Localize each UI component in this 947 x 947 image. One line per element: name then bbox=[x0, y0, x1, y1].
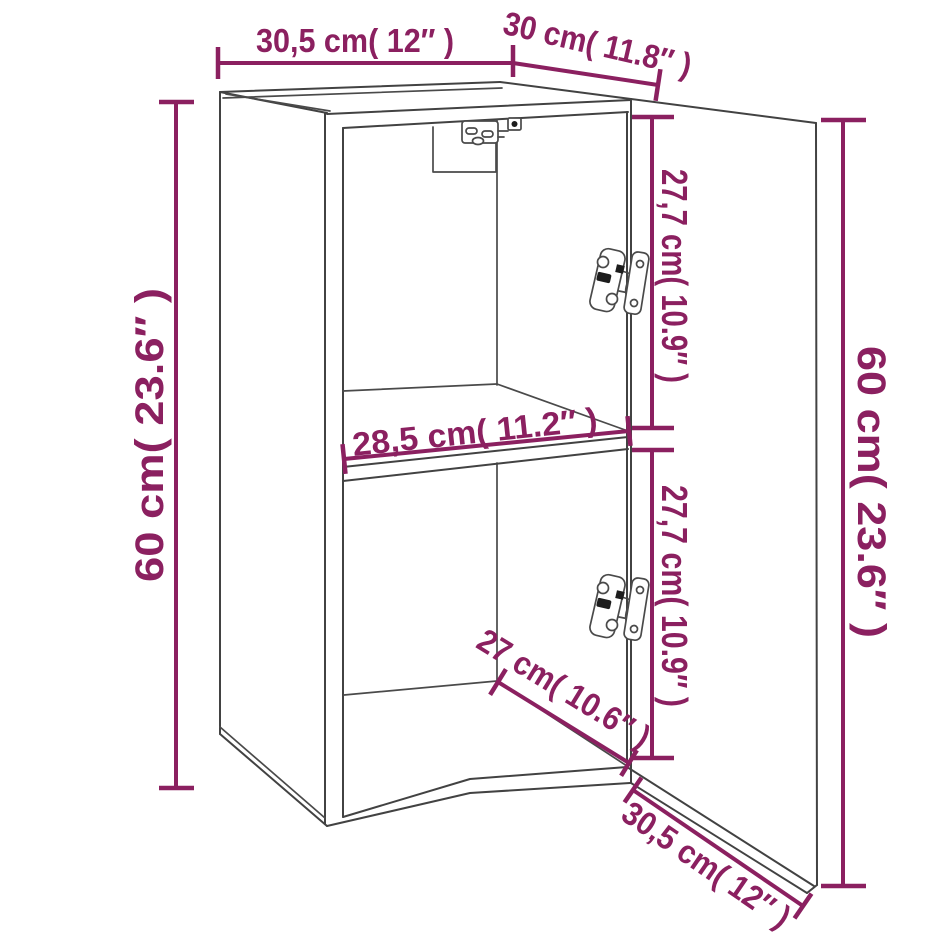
wall-mount-bracket bbox=[433, 118, 521, 172]
hinge-screw-hole bbox=[637, 261, 644, 268]
dimension-interior-depth-label: 27 cm( 10.6″ ) bbox=[471, 621, 657, 755]
dimension-door-width-label: 30,5 cm( 12″ ) bbox=[615, 794, 797, 936]
dimension-left-height-label: 60 cm( 23.6″ ) bbox=[128, 288, 172, 582]
top-back-edge bbox=[220, 82, 500, 92]
bracket-slot-2 bbox=[482, 131, 493, 137]
bottom-left-edge bbox=[220, 734, 327, 826]
door-outer-edge bbox=[816, 123, 817, 885]
floor-back-edge bbox=[344, 681, 497, 695]
dimension-lower-compartment-label: 27,7 cm( 10.9″ ) bbox=[654, 485, 695, 707]
hinge-screw-hole bbox=[598, 257, 609, 268]
dimension-door-height: 60 cm( 23.6″ ) bbox=[821, 120, 893, 886]
hinge-icon bbox=[588, 247, 649, 315]
bracket-screw-dot-icon bbox=[512, 121, 518, 127]
door-top-edge bbox=[631, 99, 816, 123]
dimension-top-width: 30,5 cm( 12″ ) bbox=[218, 22, 513, 79]
hinge-icon-lower bbox=[588, 573, 649, 641]
dimension-top-depth-label: 30 cm( 11.8″ ) bbox=[500, 4, 695, 83]
bracket-oval-hole bbox=[473, 138, 484, 145]
dimension-door-height-label: 60 cm( 23.6″ ) bbox=[849, 346, 893, 638]
dimension-top-width-label: 30,5 cm( 12″ ) bbox=[256, 22, 454, 59]
dimension-left-height: 60 cm( 23.6″ ) bbox=[128, 102, 194, 788]
bracket-step bbox=[498, 131, 508, 137]
dimension-door-width: 30,5 cm( 12″ ) bbox=[615, 778, 811, 936]
bracket-slot-1 bbox=[466, 128, 477, 134]
hinge-screw-hole bbox=[607, 294, 618, 305]
front-top-edge bbox=[327, 100, 631, 114]
door-bottom-corner-edge bbox=[807, 885, 817, 893]
diagram-svg: 30,5 cm( 12″ ) 30 cm( 11.8″ ) 60 cm( 23.… bbox=[0, 0, 947, 947]
shelf-back-edge bbox=[343, 384, 497, 391]
hinge-screw-hole bbox=[631, 300, 638, 307]
dimension-interior-depth: 27 cm( 10.6″ ) bbox=[471, 621, 657, 776]
dimension-diagram: 30,5 cm( 12″ ) 30 cm( 11.8″ ) 60 cm( 23.… bbox=[0, 0, 947, 947]
bottom-left-edge-inner bbox=[220, 727, 325, 818]
dimension-upper-compartment-label: 27,7 cm( 10.9″ ) bbox=[654, 169, 695, 383]
bottom-front-outer-edge bbox=[327, 783, 630, 826]
top-right-edge bbox=[500, 82, 631, 99]
